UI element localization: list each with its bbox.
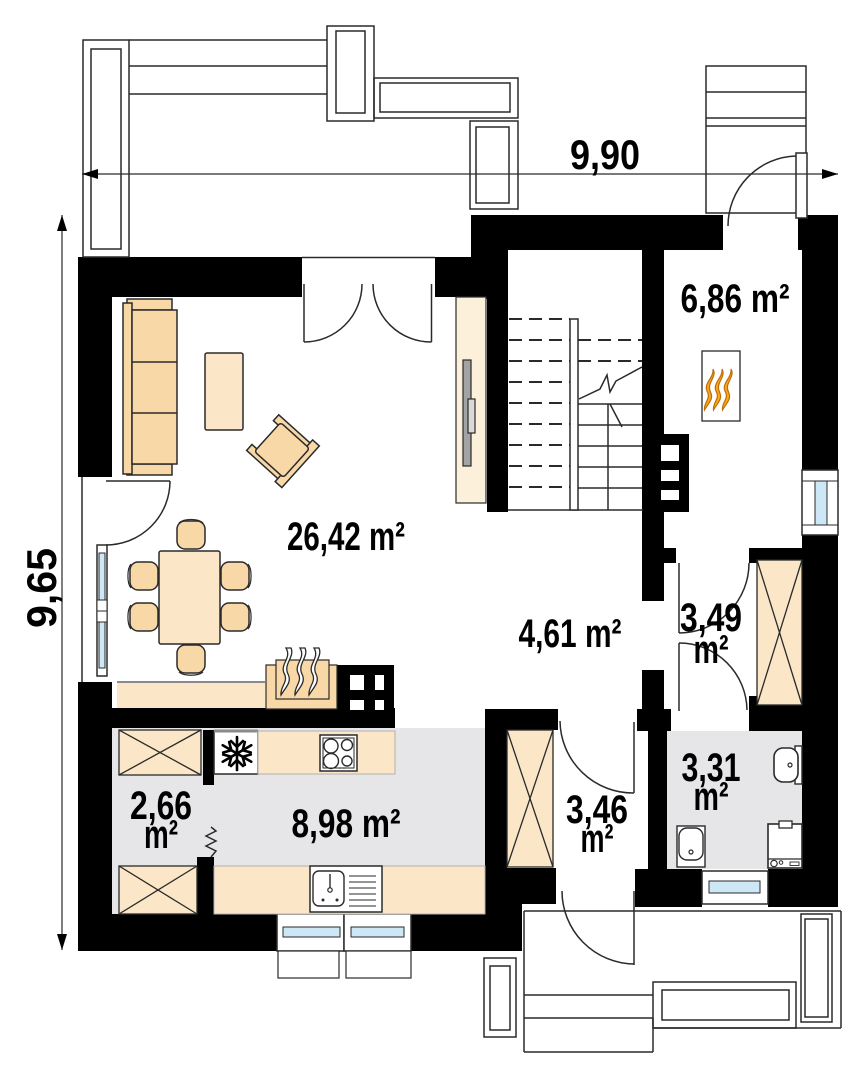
svg-text:m²: m² xyxy=(144,813,178,857)
svg-text:m²: m² xyxy=(694,775,729,819)
svg-text:9,90: 9,90 xyxy=(570,131,640,178)
svg-text:8,98 m²: 8,98 m² xyxy=(292,802,401,846)
svg-text:9,65: 9,65 xyxy=(18,548,65,628)
svg-text:m²: m² xyxy=(581,817,614,861)
svg-text:m²: m² xyxy=(694,628,729,672)
svg-text:6,86 m²: 6,86 m² xyxy=(681,277,790,321)
svg-text:26,42 m²: 26,42 m² xyxy=(287,515,405,559)
svg-text:4,61 m²: 4,61 m² xyxy=(519,612,622,656)
